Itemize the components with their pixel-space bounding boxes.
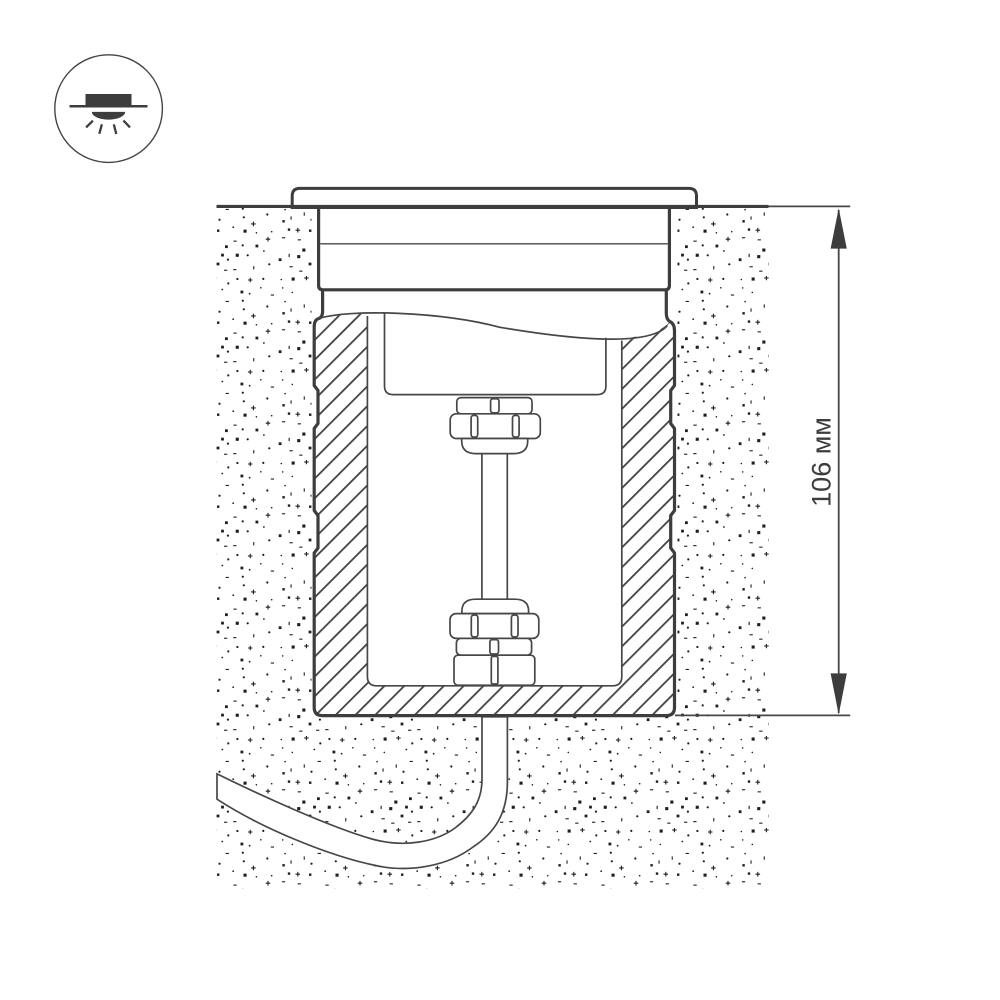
svg-text:106 мм: 106 мм <box>807 417 837 507</box>
